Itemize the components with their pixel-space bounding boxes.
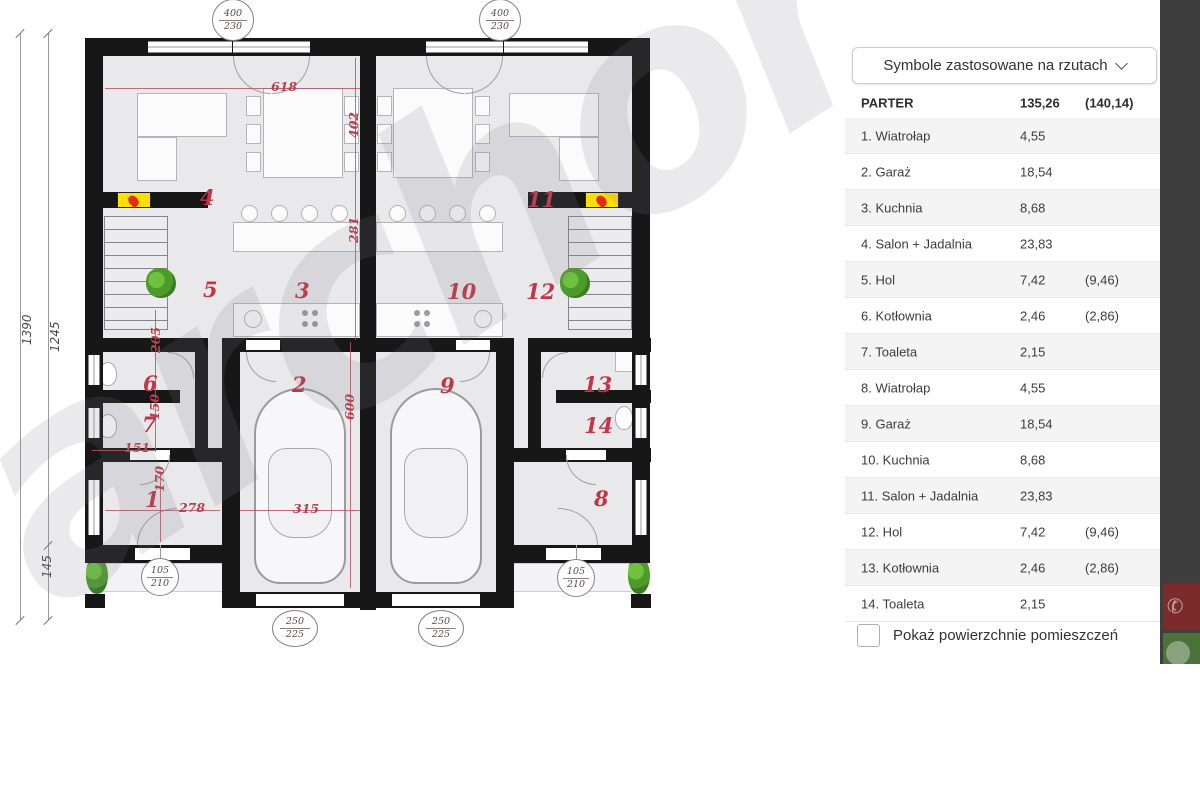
window [88,408,100,438]
overlay-band [1160,0,1200,664]
table-row: 13. Kotłownia2,46(2,86) [845,550,1160,586]
floor-name: PARTER [861,96,913,111]
furniture [475,124,490,144]
room-area: 23,83 [1020,236,1053,251]
wall [85,338,195,352]
furniture [246,96,261,116]
furniture [263,88,343,178]
room-area-alt: (9,46) [1085,524,1119,539]
furniture [559,137,599,181]
room-name: 6. Kotłownia [861,308,932,323]
dimension-line [355,58,356,222]
window-dimension-text: 230 [224,22,242,32]
floor-plan: 4115310126291371418618402281600315278170… [0,0,845,664]
room-area-alt: (2,86) [1085,308,1119,323]
table-header-row: PARTER 135,26 (140,14) [845,88,1160,118]
room-area: 7,42 [1020,524,1045,539]
window-dimension-symbol: 250225 [418,610,464,647]
wall [103,192,117,208]
dimension-line [576,545,577,559]
room-name: 11. Salon + Jadalnia [861,488,978,503]
furniture [376,222,503,252]
table-row: 5. Hol7,42(9,46) [845,262,1160,298]
room-name: 5. Hol [861,272,895,287]
door-opening [456,340,490,350]
symbols-dropdown-button[interactable]: Symbole zastosowane na rzutach [852,47,1157,84]
furniture [344,152,359,172]
table-row: 8. Wiatrołap4,55 [845,370,1160,406]
furniture [475,96,490,116]
table-row: 1. Wiatrołap4,55 [845,118,1160,154]
furniture [377,124,392,144]
bar-stool [301,205,318,222]
furniture [509,93,599,137]
dimension-line [350,342,351,588]
table-row: 10. Kuchnia8,68 [845,442,1160,478]
show-areas-row: Pokaż powierzchnie pomieszczeń [857,624,1118,647]
furniture [137,93,227,137]
door-opening [246,340,280,350]
window-dimension-symbol: 400230 [479,0,521,41]
room-area: 2,46 [1020,308,1045,323]
window-dimension-text: 105 [151,566,169,576]
bar-stool [479,205,496,222]
window-dimension-text: 400 [491,9,509,19]
door-opening [392,594,480,606]
window-dimension-symbol: 250225 [272,610,318,647]
furniture [246,124,261,144]
dimension-line [105,88,360,89]
room-name: 1. Wiatrołap [861,128,930,143]
plant [146,268,176,298]
room-name: 2. Garaż [861,164,911,179]
plant [560,268,590,298]
stove-burner [312,321,318,327]
window-dimension-text: 400 [224,9,242,19]
bar-stool [241,205,258,222]
fireplace [585,192,619,208]
kitchen-sink [244,310,262,328]
room-name: 10. Kuchnia [861,452,930,467]
dimension-line [160,545,161,559]
car-cabin [268,448,332,538]
phone-icon: ✆ [1165,593,1187,621]
wall [85,390,180,403]
stove-burner [302,310,308,316]
window-dimension-text: 250 [286,617,304,627]
table-row: 7. Toaleta2,15 [845,334,1160,370]
table-row: 3. Kuchnia8,68 [845,190,1160,226]
room-area: 2,15 [1020,596,1045,611]
window [504,41,588,53]
room-area: 2,15 [1020,344,1045,359]
room-name: 8. Wiatrołap [861,380,930,395]
room-name: 9. Garaż [861,416,911,431]
window [426,41,503,53]
fireplace [117,192,151,208]
room-area-alt: (2,86) [1085,560,1119,575]
stove-burner [414,321,420,327]
window [635,355,647,385]
furniture [393,88,473,178]
furniture [137,137,177,181]
wall [222,338,240,608]
stove-burner [424,310,430,316]
wall [360,38,376,610]
furniture [377,152,392,172]
window-dimension-text: 105 [567,567,585,577]
table-row: 4. Salon + Jadalnia23,83 [845,226,1160,262]
bar-stool [389,205,406,222]
call-button[interactable]: ✆ [1163,583,1200,630]
table-row: 9. Garaż18,54 [845,406,1160,442]
window-dimension-symbol: 105210 [141,558,179,596]
bar-stool [449,205,466,222]
furniture [377,96,392,116]
room-area: 18,54 [1020,164,1053,179]
flame-icon [594,194,609,209]
window [635,408,647,438]
window-dimension-text: 210 [151,579,169,589]
window [88,480,100,535]
room-area-alt: (9,46) [1085,272,1119,287]
wall [195,338,208,455]
chevron-down-icon [1115,57,1128,70]
window [233,41,310,53]
room-area: 7,42 [1020,272,1045,287]
table-row: 11. Salon + Jadalnia23,83 [845,478,1160,514]
room-name: 14. Toaleta [861,596,924,611]
bar-stool [271,205,288,222]
window-dimension-text: 225 [286,630,304,640]
stove-burner [302,321,308,327]
room-area: 8,68 [1020,200,1045,215]
window-dimension-text: 210 [567,580,585,590]
window [88,355,100,385]
furniture [233,222,360,252]
room-area: 4,55 [1020,128,1045,143]
room-area: 4,55 [1020,380,1045,395]
room-name: 3. Kuchnia [861,200,922,215]
window-dimension-symbol: 400230 [212,0,254,41]
stove-burner [312,310,318,316]
room-table-body: 1. Wiatrołap4,552. Garaż18,543. Kuchnia8… [845,118,1160,622]
toilet [615,406,633,430]
table-row: 2. Garaż18,54 [845,154,1160,190]
floor-area-total: 135,26 [1020,96,1060,111]
furniture [246,152,261,172]
window-dimension-text: 230 [491,22,509,32]
room-area: 23,83 [1020,488,1053,503]
chat-bubble-icon [1166,641,1190,665]
window-dimension-text: 225 [432,630,450,640]
room-area: 8,68 [1020,452,1045,467]
symbols-dropdown-label: Symbole zastosowane na rzutach [883,57,1107,74]
wall [528,338,541,455]
table-row: 14. Toaleta2,15 [845,586,1160,622]
car-cabin [404,448,468,538]
window-dimension-text: 250 [432,617,450,627]
room-name: 4. Salon + Jadalnia [861,236,972,251]
door-opening [256,594,344,606]
flame-icon [126,194,141,209]
room-name: 13. Kotłownia [861,560,939,575]
wall [619,192,633,208]
table-row: 12. Hol7,42(9,46) [845,514,1160,550]
room-area: 18,54 [1020,416,1053,431]
stove-burner [424,321,430,327]
wall [631,594,651,608]
room-name: 7. Toaleta [861,344,917,359]
room-name: 12. Hol [861,524,902,539]
stove-burner [414,310,420,316]
window-dimension-symbol: 105210 [557,559,595,597]
room-list-panel: Symbole zastosowane na rzutach PARTER 13… [845,0,1161,664]
floor-area-total-alt: (140,14) [1085,96,1133,111]
dimension-line [355,226,356,340]
room-area: 2,46 [1020,560,1045,575]
show-areas-label: Pokaż powierzchnie pomieszczeń [893,627,1118,644]
wall [85,594,105,608]
wall [496,338,514,608]
chat-button[interactable] [1163,633,1200,664]
show-areas-checkbox[interactable] [857,624,880,647]
kitchen-sink [474,310,492,328]
window [148,41,232,53]
wall [541,338,651,352]
bar-stool [419,205,436,222]
window [635,480,647,535]
furniture [475,152,490,172]
table-row: 6. Kotłownia2,46(2,86) [845,298,1160,334]
